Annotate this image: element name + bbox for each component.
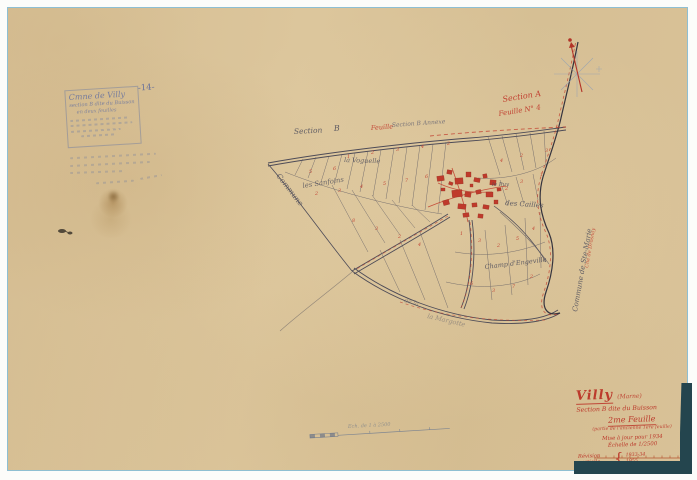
map-label: B bbox=[333, 124, 340, 133]
parcel-number: 3 bbox=[478, 238, 481, 244]
compass-rose-icon bbox=[554, 38, 602, 97]
handwriting-squiggle bbox=[70, 121, 132, 127]
commune-name: Villy bbox=[576, 389, 614, 405]
north-needle bbox=[568, 38, 582, 92]
map-label: des Cailles bbox=[505, 199, 544, 210]
parcel-number: 3 bbox=[375, 226, 378, 232]
parcel-number: 4 bbox=[417, 242, 421, 248]
parcel-number: 2 bbox=[496, 243, 500, 249]
parcel-number: 2 bbox=[314, 191, 318, 197]
parcel-lines bbox=[285, 131, 556, 308]
handwriting-squiggle bbox=[81, 133, 117, 137]
map-label: Ech. de 1 à 2500 bbox=[347, 421, 392, 430]
map-label: Section A bbox=[502, 89, 542, 104]
section-line: Section B dite du Buisson bbox=[576, 403, 686, 414]
parcel-number: 2 bbox=[529, 274, 533, 280]
parcel-number: 3 bbox=[396, 147, 399, 153]
parcel-number: 3 bbox=[545, 148, 548, 154]
parcel-number: 5 bbox=[516, 236, 519, 242]
parcel-number: 1 bbox=[540, 172, 543, 178]
village-buildings bbox=[437, 170, 501, 219]
ink-blot bbox=[58, 229, 73, 235]
parcel-number: 2 bbox=[504, 186, 508, 192]
revision-entry: 1933-34 bbox=[625, 453, 645, 459]
map-label: Champ d'Engeville bbox=[484, 255, 547, 271]
parcel-number: 2 bbox=[446, 141, 450, 147]
parcel-number: 4 bbox=[420, 144, 424, 150]
sheet-note: (partie de l'ancienne 1ère feuille) bbox=[577, 424, 687, 433]
map-label: Commune bbox=[274, 172, 305, 208]
parcel-number: 5 bbox=[383, 181, 386, 187]
departement-name: (Marne) bbox=[617, 393, 642, 401]
parcel-number: 2 bbox=[397, 234, 401, 240]
handwriting-squiggle bbox=[71, 127, 121, 132]
parcel-number: 4 bbox=[531, 226, 535, 232]
map-label: les Sanfoins bbox=[302, 175, 345, 189]
parcel-number: 6 bbox=[333, 166, 336, 172]
parcel-number: 5 bbox=[309, 169, 312, 175]
parcel-number: 4 bbox=[499, 158, 503, 164]
parcel-number: 3 bbox=[520, 179, 523, 185]
map-label: Feuille bbox=[370, 122, 394, 132]
scan-backing bbox=[574, 461, 692, 474]
page-number-mark: -14- bbox=[138, 82, 155, 93]
scanned-map-page: SectionBFeuilleSection B AnnexeSection A… bbox=[0, 0, 697, 480]
stream-line bbox=[538, 42, 578, 315]
parcel-number: 1 bbox=[347, 154, 350, 160]
parcel-number: 8 bbox=[352, 218, 355, 224]
map-labels-layer: SectionBFeuilleSection B AnnexeSection A… bbox=[274, 89, 597, 430]
handwriting-squiggle bbox=[70, 116, 128, 122]
parcel-number: 6 bbox=[470, 281, 473, 287]
map-label: Section bbox=[294, 126, 323, 136]
parcel-number: 3 bbox=[492, 288, 495, 294]
map-label: Feuille N° 4 bbox=[497, 103, 541, 118]
parcel-number: 6 bbox=[425, 174, 428, 180]
parcel-number: 1 bbox=[460, 231, 463, 237]
title-block: Villy (Marne) Section B dite du Buisson … bbox=[576, 386, 689, 468]
parcel-number: 7 bbox=[405, 178, 409, 184]
parcel-number: 2 bbox=[370, 150, 374, 156]
pencil-cartouche: Cmne de Villy section B dite du Buisson … bbox=[64, 86, 141, 148]
parcel-number: 2 bbox=[519, 153, 523, 159]
parcel-number: 7 bbox=[512, 284, 516, 290]
parcel-number: 3 bbox=[338, 188, 341, 194]
map-label: Section B Annexe bbox=[392, 118, 446, 129]
red-route-marks bbox=[355, 127, 566, 320]
parcel-number: 4 bbox=[359, 184, 363, 190]
